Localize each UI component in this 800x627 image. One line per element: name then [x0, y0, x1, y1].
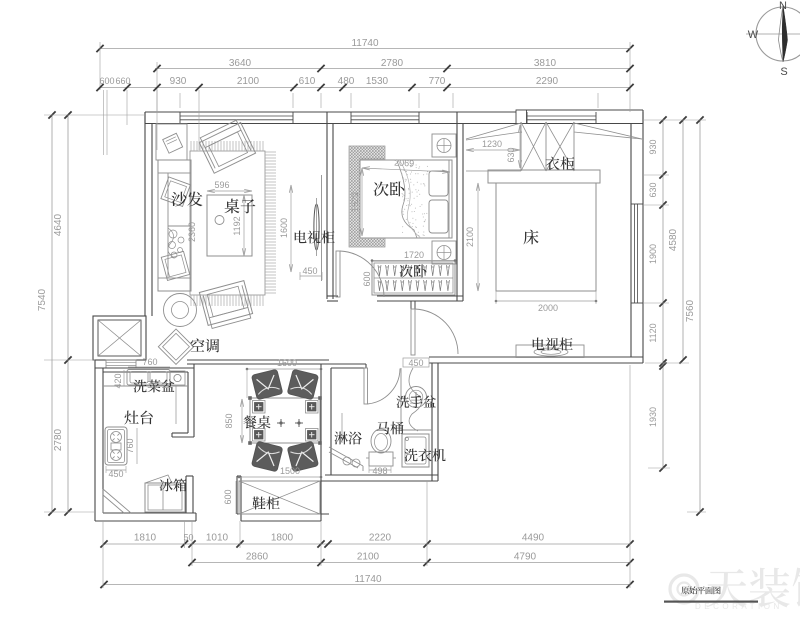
- svg-text:760: 760: [142, 357, 157, 367]
- svg-text:4640: 4640: [53, 213, 64, 236]
- svg-text:2000: 2000: [538, 303, 558, 313]
- svg-text:630: 630: [648, 182, 658, 197]
- svg-text:610: 610: [299, 76, 316, 87]
- svg-text:600: 600: [362, 271, 372, 286]
- svg-text:11740: 11740: [354, 574, 382, 585]
- svg-text:1810: 1810: [134, 533, 157, 544]
- svg-text:4790: 4790: [514, 552, 537, 563]
- svg-text:450: 450: [302, 266, 317, 276]
- svg-text:1720: 1720: [404, 250, 424, 260]
- svg-text:4580: 4580: [668, 228, 679, 251]
- svg-text:930: 930: [170, 76, 187, 87]
- svg-text:3640: 3640: [229, 58, 252, 69]
- svg-text:450: 450: [408, 358, 423, 368]
- svg-text:DECORATION: DECORATION: [695, 602, 783, 611]
- svg-text:1010: 1010: [206, 533, 229, 544]
- svg-text:7560: 7560: [685, 299, 696, 322]
- svg-text:1192: 1192: [232, 216, 242, 235]
- svg-text:1800: 1800: [271, 533, 294, 544]
- svg-text:1530: 1530: [366, 76, 389, 87]
- svg-text:498: 498: [372, 466, 387, 476]
- svg-text:W: W: [748, 29, 759, 41]
- svg-text:4490: 4490: [522, 533, 545, 544]
- svg-text:596: 596: [214, 180, 229, 190]
- svg-text:2069: 2069: [394, 157, 415, 168]
- svg-text:7540: 7540: [37, 288, 48, 311]
- svg-text:2220: 2220: [369, 533, 392, 544]
- svg-text:1230: 1230: [482, 139, 502, 149]
- svg-text:2360: 2360: [187, 222, 197, 242]
- svg-text:480: 480: [338, 76, 355, 87]
- svg-text:2860: 2860: [246, 552, 269, 563]
- svg-text:850: 850: [224, 413, 234, 428]
- svg-text:600: 600: [99, 76, 114, 86]
- svg-text:3810: 3810: [534, 58, 557, 69]
- svg-text:630: 630: [506, 147, 516, 162]
- svg-text:660: 660: [115, 76, 130, 86]
- svg-text:2100: 2100: [237, 76, 260, 87]
- svg-text:2290: 2290: [536, 76, 559, 87]
- svg-text:760: 760: [125, 438, 135, 453]
- svg-text:1120: 1120: [648, 323, 658, 342]
- svg-text:930: 930: [648, 139, 658, 154]
- svg-text:1529: 1529: [350, 192, 360, 212]
- svg-text:2100: 2100: [357, 552, 380, 563]
- svg-text:S: S: [780, 66, 787, 78]
- svg-text:450: 450: [108, 469, 123, 479]
- svg-text:1600: 1600: [279, 218, 289, 238]
- svg-text:2780: 2780: [53, 428, 64, 451]
- svg-text:1900: 1900: [648, 244, 658, 264]
- svg-text:1600: 1600: [277, 358, 297, 368]
- svg-text:2100: 2100: [465, 227, 475, 247]
- svg-text:2780: 2780: [381, 58, 404, 69]
- svg-text:770: 770: [429, 76, 446, 87]
- svg-text:420: 420: [113, 373, 123, 388]
- svg-text:N: N: [779, 0, 787, 12]
- svg-text:11740: 11740: [351, 38, 379, 49]
- svg-text:600: 600: [223, 489, 233, 504]
- svg-text:1930: 1930: [648, 407, 658, 427]
- svg-text:1500: 1500: [280, 466, 300, 476]
